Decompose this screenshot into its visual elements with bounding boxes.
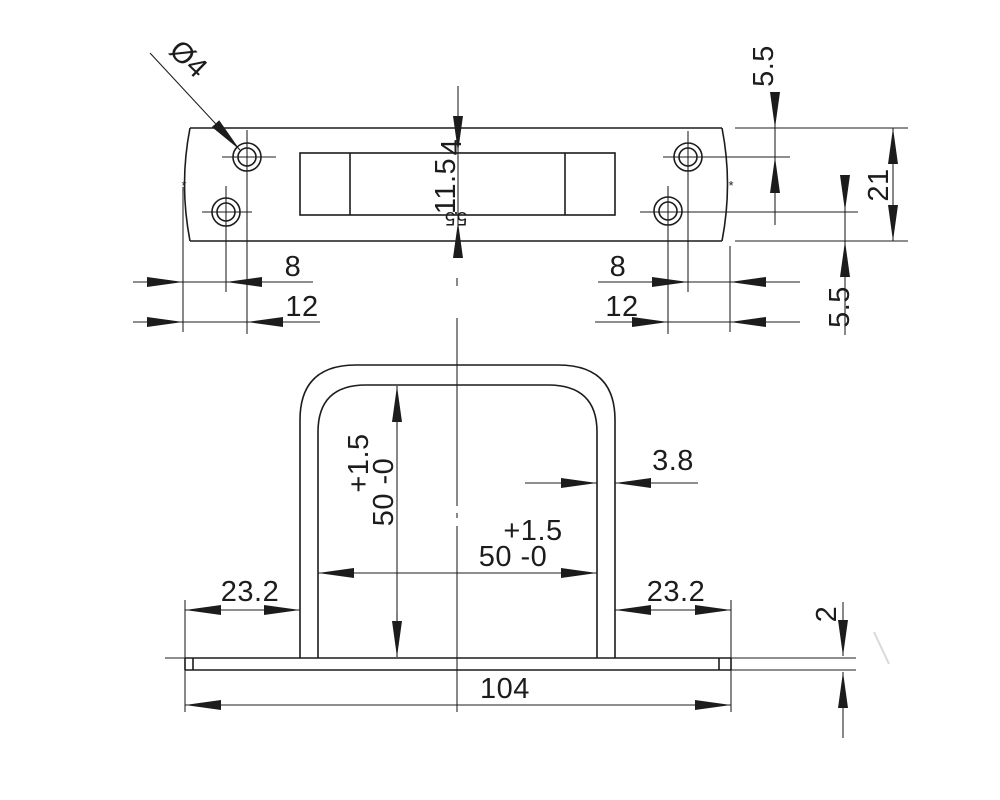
dim-label-slot-height: 11.5 [430,158,462,214]
dim-left-flange: 23.2 [185,576,300,610]
dim-label-plate-width: 21 [863,168,895,201]
scan-artifact [874,632,889,664]
dim-label-opening-width: 50 -0 [479,541,548,573]
dim-label-wall-thickness: 3.8 [652,445,694,477]
dim-wall-thickness: 3.8 [525,445,698,483]
base-plate [185,658,731,670]
dim-label-8-right: 8 [610,251,627,283]
dim-label-12-right: 12 [605,291,638,323]
arc-marker-right: * [728,178,733,193]
dim-slot-vertical-stack: 4 11.5 5.5 [430,86,468,258]
dim-base-length: 104 [185,600,731,712]
dim-label-slot-bottom-offset: 5.5 [445,207,467,228]
dim-label-12-left: 12 [285,291,318,323]
dim-right-flange: 23.2 [615,576,731,610]
dim-edge-to-hole-top: 5.5 [748,45,780,225]
dim-label-opening-height: 50 -0 [368,458,400,527]
dim-plate-width: 21 [863,128,895,241]
dim-label-right-flange: 23.2 [647,576,705,608]
dim-label-hole-diameter: Ø4 [163,34,214,85]
dim-label-slot-top-offset: 4 [436,139,468,156]
arc-marker-left: * [181,178,186,193]
dim-opening-height: +1.5 50 -0 [343,386,400,657]
dim-label-hole-to-edge-bottom: 5.5 [824,286,856,328]
technical-drawing: * * Ø4 4 11.5 5.5 5.5 21 5.5 [0,0,1000,800]
plate-right-arc [722,128,728,241]
dim-hole-diameter: Ø4 [150,34,240,150]
dim-hole-to-edge-bottom: 5.5 [824,175,856,335]
drawing-canvas: * * Ø4 4 11.5 5.5 5.5 21 5.5 [0,0,1000,800]
dim-right-hole-offsets: 8 12 [595,251,800,323]
dim-label-edge-to-hole-top: 5.5 [748,45,780,87]
dim-label-base-thickness: 2 [811,606,843,623]
dim-label-8-left: 8 [285,251,302,283]
dim-label-left-flange: 23.2 [221,576,279,608]
dim-label-base-length: 104 [480,673,530,705]
